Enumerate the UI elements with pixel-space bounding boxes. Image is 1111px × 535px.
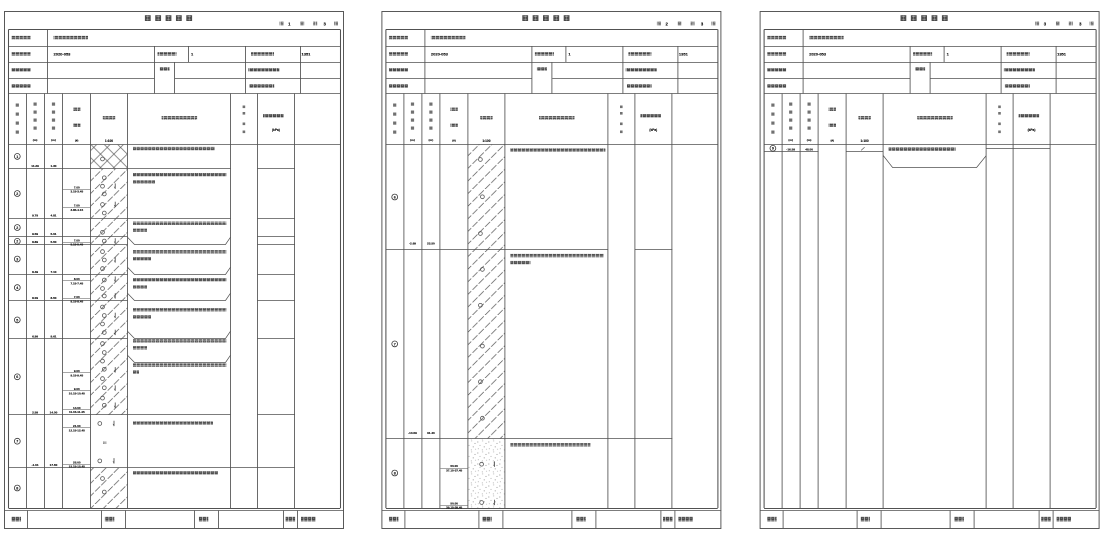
svg-text:(m): (m) — [410, 138, 415, 142]
svg-text:2020-053: 2020-053 — [431, 52, 449, 57]
svg-text:6: 6 — [16, 375, 18, 379]
svg-text:8.89: 8.89 — [32, 240, 38, 244]
svg-text:2: 2 — [16, 192, 18, 196]
svg-text:3: 3 — [324, 22, 327, 27]
svg-text:6.99: 6.99 — [32, 334, 38, 338]
svg-text:37.15-37.45: 37.15-37.45 — [446, 468, 462, 472]
svg-text:3: 3 — [16, 257, 18, 261]
svg-text:8: 8 — [16, 486, 18, 490]
svg-text:5.15-5.45: 5.15-5.45 — [70, 243, 83, 247]
svg-text:9.59: 9.59 — [32, 232, 38, 236]
svg-text:17.60: 17.60 — [50, 463, 58, 467]
svg-text:1:100: 1:100 — [105, 139, 113, 143]
svg-text:-10.59: -10.59 — [408, 431, 417, 435]
svg-text:3.15-3.45: 3.15-3.45 — [70, 190, 83, 194]
svg-text:9.61: 9.61 — [50, 334, 56, 338]
svg-text:6: 6 — [394, 195, 396, 199]
svg-text:39.15-39.45: 39.15-39.45 — [446, 506, 462, 510]
svg-text:4: 4 — [16, 286, 18, 290]
svg-text:8.49: 8.49 — [32, 270, 38, 274]
svg-text:(m): (m) — [51, 138, 56, 142]
svg-text:-1.01: -1.01 — [32, 463, 39, 467]
svg-text:5: 5 — [16, 318, 18, 322]
svg-text:7: 7 — [16, 440, 18, 444]
svg-text:7.15-7.45: 7.15-7.45 — [70, 281, 83, 285]
svg-text:1: 1 — [16, 155, 18, 159]
svg-text:1: 1 — [288, 22, 291, 27]
svg-text:2020-053: 2020-053 — [54, 52, 72, 57]
svg-text:(#): (#) — [452, 139, 455, 143]
svg-text:(kPa): (kPa) — [1028, 128, 1036, 132]
svg-text:2020-053: 2020-053 — [809, 52, 827, 57]
svg-text:4.81: 4.81 — [50, 214, 56, 218]
svg-text:15.15-15.45: 15.15-15.45 — [69, 465, 85, 469]
svg-text:1.30: 1.30 — [50, 164, 56, 168]
svg-text:48.00: 48.00 — [805, 147, 813, 151]
svg-text:(m): (m) — [788, 138, 793, 142]
svg-text:3: 3 — [1079, 22, 1082, 27]
svg-text:8.50: 8.50 — [50, 296, 56, 300]
svg-text:2: 2 — [666, 22, 669, 27]
svg-text:(m): (m) — [429, 138, 434, 142]
svg-text:9: 9 — [772, 147, 774, 151]
svg-text:11.29: 11.29 — [31, 164, 39, 168]
svg-text:5.01: 5.01 — [50, 232, 56, 236]
svg-text:1: 1 — [191, 52, 194, 57]
svg-text:9.15-9.45: 9.15-9.45 — [70, 373, 83, 377]
svg-text:-16.59: -16.59 — [786, 147, 795, 151]
svg-text:8.15-8.45: 8.15-8.45 — [70, 299, 83, 303]
svg-text:8.09: 8.09 — [32, 296, 38, 300]
svg-text:-2.69: -2.69 — [409, 242, 416, 246]
svg-text:2: 2 — [16, 240, 18, 244]
svg-text:1: 1 — [568, 52, 571, 57]
svg-text:3.85-4.15: 3.85-4.15 — [70, 208, 83, 212]
svg-text:1351: 1351 — [302, 52, 312, 57]
svg-text:12.15-12.45: 12.15-12.45 — [69, 428, 85, 432]
svg-text:(m): (m) — [807, 138, 812, 142]
svg-text:1:100: 1:100 — [482, 139, 490, 143]
svg-text:(kPa): (kPa) — [272, 128, 280, 132]
svg-text:31.40: 31.40 — [427, 431, 435, 435]
svg-text:1: 1 — [947, 52, 950, 57]
svg-text:(kPa): (kPa) — [649, 128, 657, 132]
svg-text:9.79: 9.79 — [32, 214, 38, 218]
svg-text:(#): (#) — [75, 139, 78, 143]
svg-text:3: 3 — [1044, 22, 1047, 27]
svg-text:3: 3 — [701, 22, 704, 27]
svg-text:2.59: 2.59 — [32, 410, 38, 414]
svg-text:1351: 1351 — [679, 52, 689, 57]
svg-text:14.00: 14.00 — [50, 410, 58, 414]
svg-text:1351: 1351 — [1057, 52, 1067, 57]
svg-text:5.50: 5.50 — [50, 240, 56, 244]
svg-text:11.15-11.45: 11.15-11.45 — [69, 410, 85, 414]
svg-text:23.50: 23.50 — [427, 242, 435, 246]
svg-text:8: 8 — [394, 471, 396, 475]
svg-text:(m): (m) — [33, 138, 38, 142]
svg-text:2: 2 — [16, 226, 18, 230]
svg-text:(#): (#) — [830, 139, 833, 143]
svg-text:7: 7 — [394, 342, 396, 346]
svg-text:7.10: 7.10 — [50, 270, 56, 274]
svg-text:1:100: 1:100 — [861, 139, 869, 143]
svg-text:10.15-10.45: 10.15-10.45 — [69, 391, 85, 395]
